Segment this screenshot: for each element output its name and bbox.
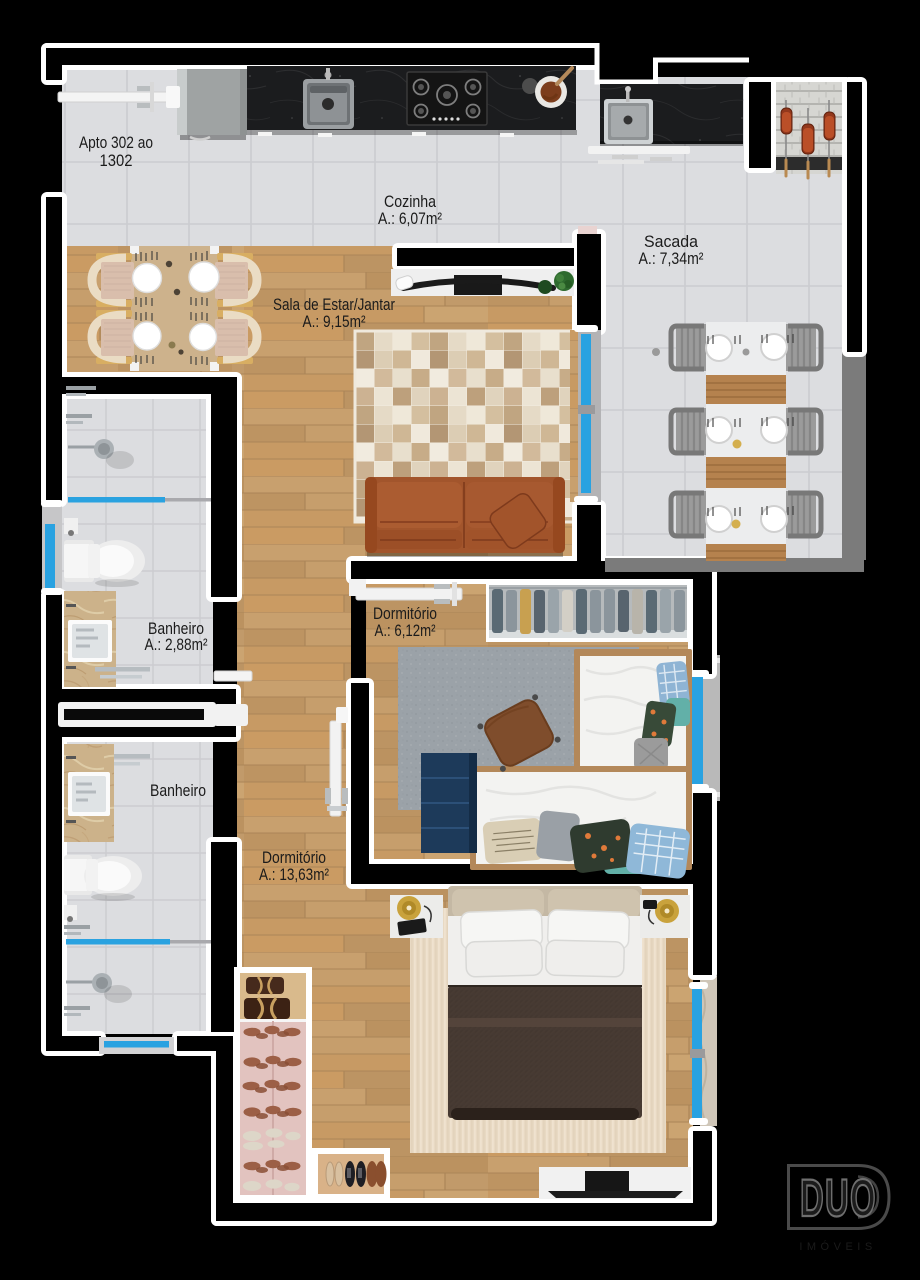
svg-text:A.: 9,15m²: A.: 9,15m² — [303, 312, 366, 331]
svg-text:A.: 13,63m²: A.: 13,63m² — [259, 865, 329, 884]
svg-text:1302: 1302 — [100, 151, 133, 170]
svg-text:A.: 2,88m²: A.: 2,88m² — [145, 635, 208, 654]
svg-text:IMÓVEIS: IMÓVEIS — [799, 1240, 876, 1253]
svg-text:DUO: DUO — [800, 1169, 877, 1228]
svg-text:A.: 6,07m²: A.: 6,07m² — [378, 209, 442, 228]
svg-text:A.: 7,34m²: A.: 7,34m² — [639, 249, 704, 268]
svg-text:Apto 302 ao: Apto 302 ao — [79, 133, 153, 152]
svg-text:Banheiro: Banheiro — [150, 781, 206, 800]
svg-text:A.: 6,12m²: A.: 6,12m² — [375, 621, 436, 640]
